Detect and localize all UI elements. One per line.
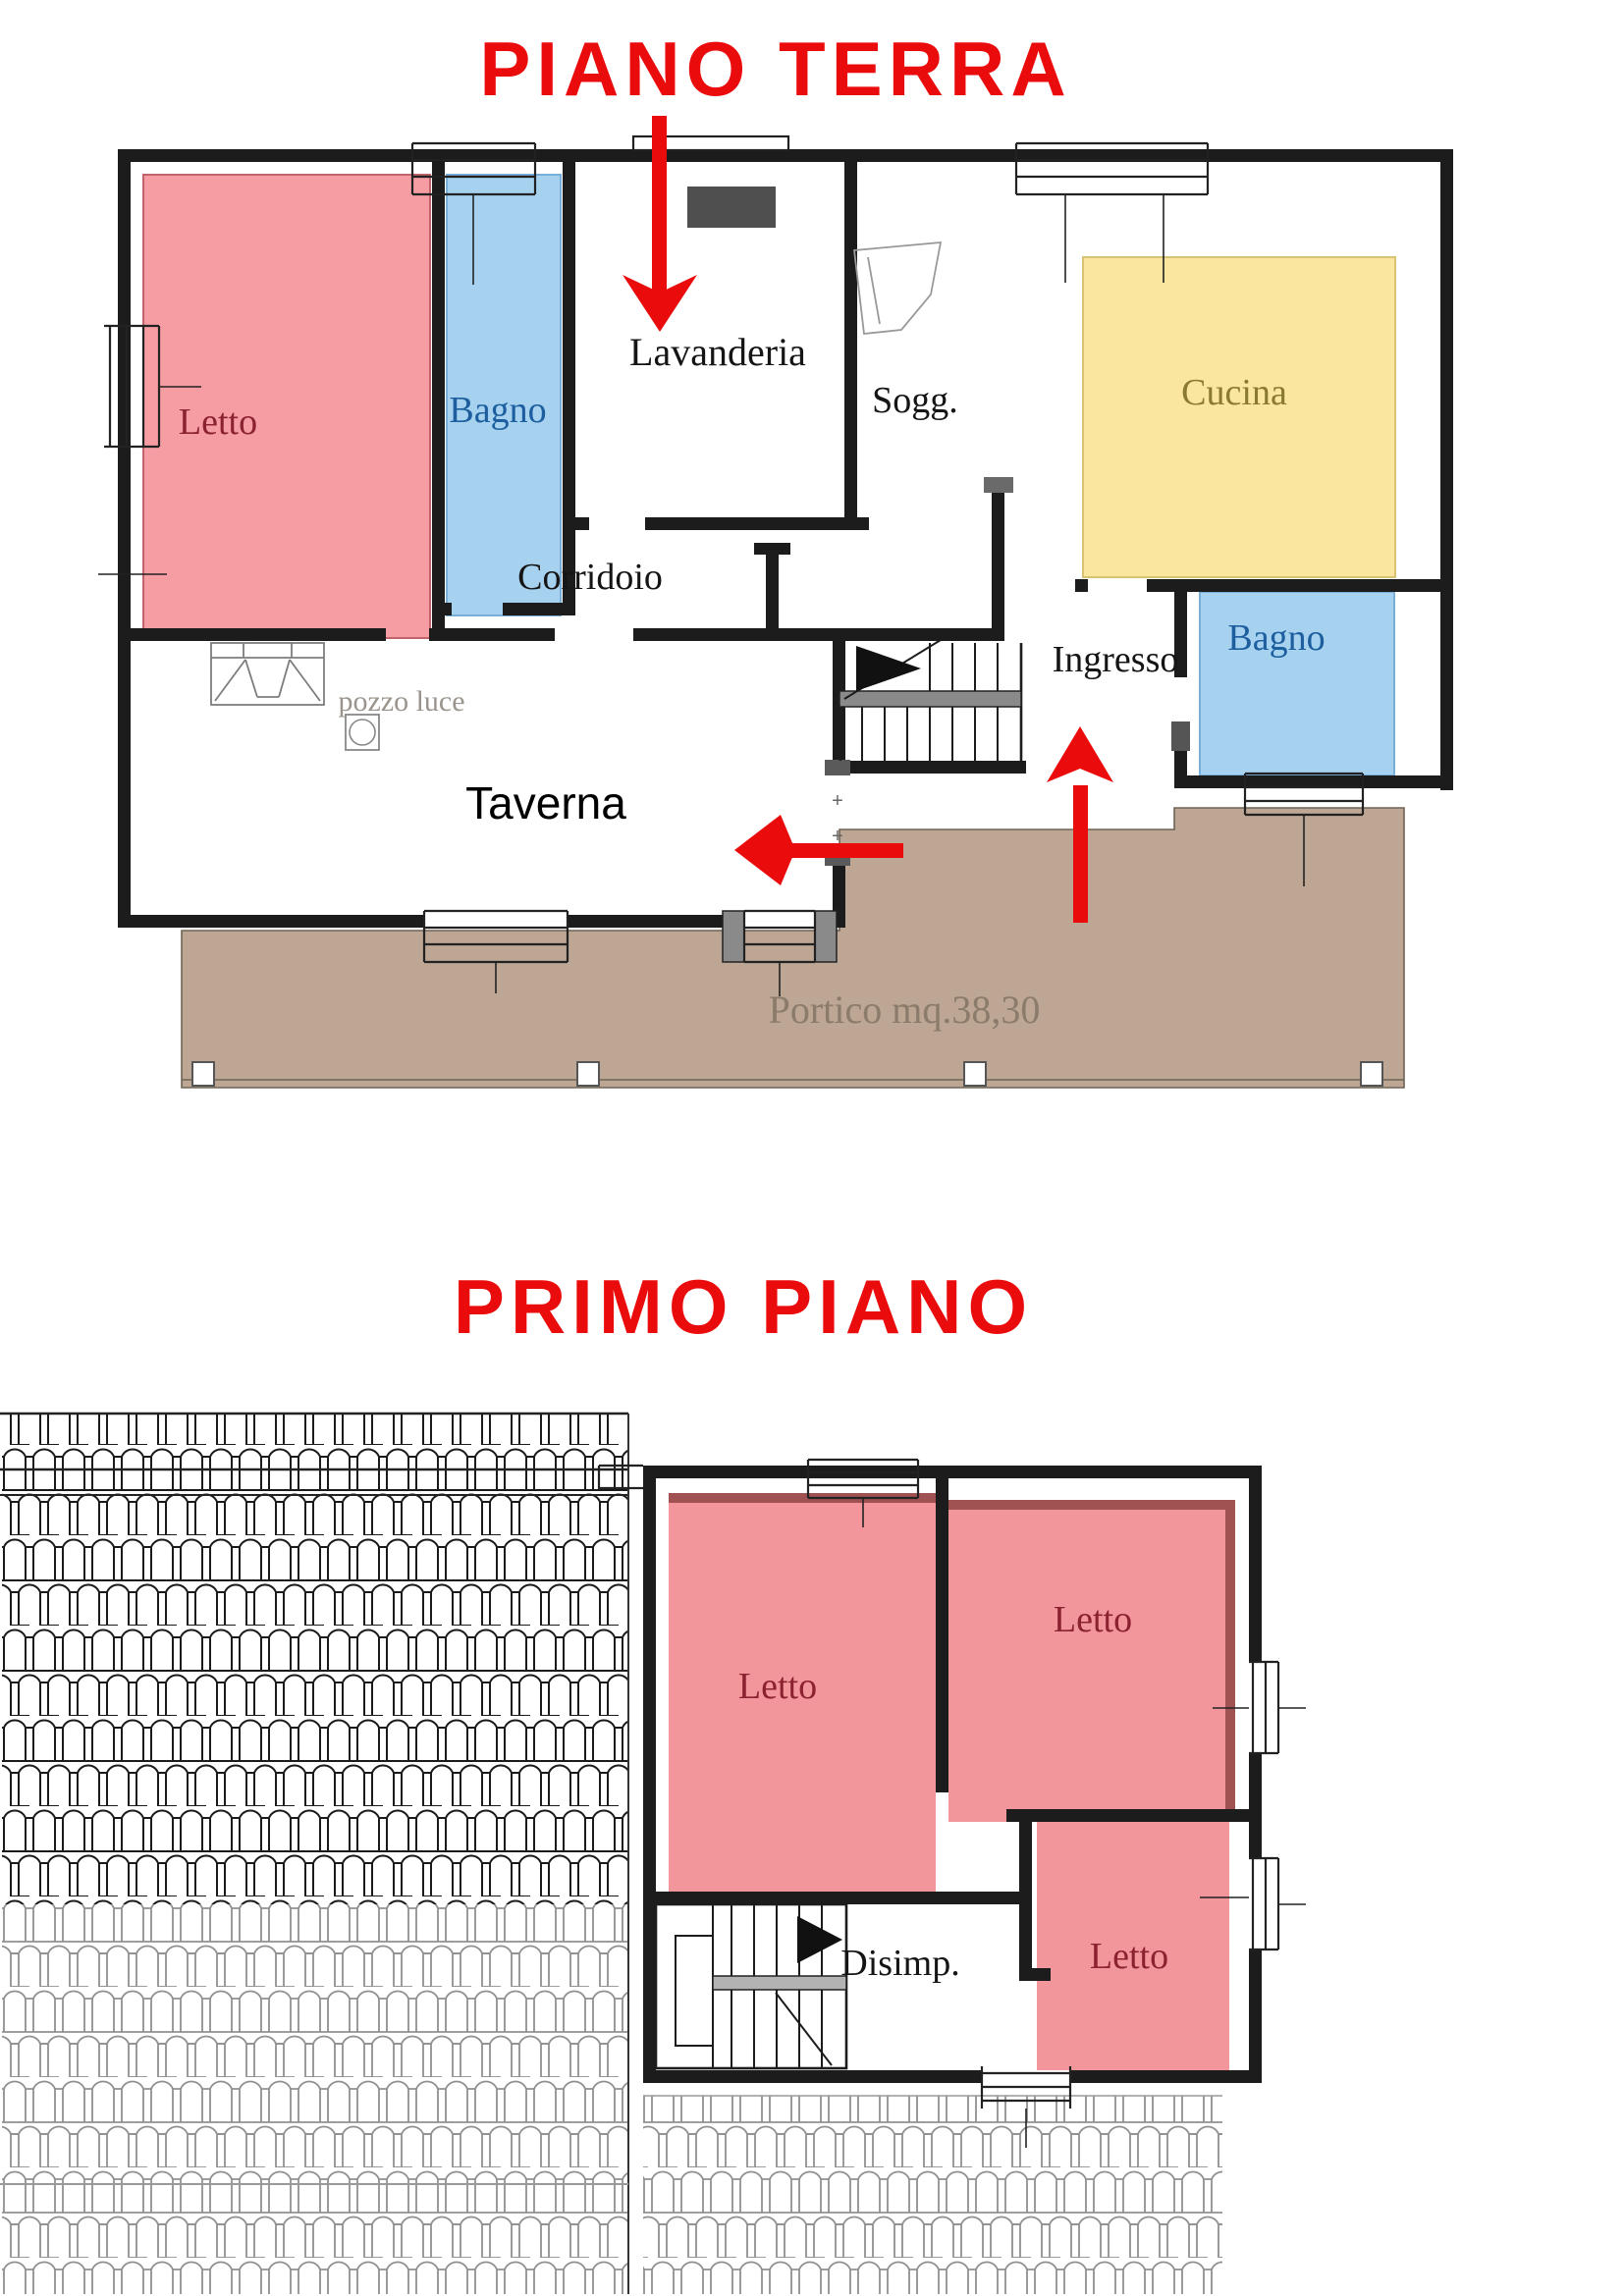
label-letto-left-first: Letto (738, 1666, 817, 1707)
label-ingresso: Ingresso (1053, 639, 1179, 680)
room-letto-topright-shade-top (948, 1500, 1235, 1510)
label-lavanderia: Lavanderia (629, 330, 806, 374)
label-pozzo-luce: pozzo luce (338, 685, 464, 718)
lavanderia-door-block (687, 187, 776, 228)
soggiorno-door-block (984, 477, 1013, 493)
stair-direction-arrow-icon (856, 646, 921, 691)
light-well-icon (346, 715, 379, 750)
label-taverna: Taverna (465, 777, 626, 828)
taverna-door-jamb-top (825, 760, 850, 775)
door-swing-sketch (854, 242, 941, 334)
label-bagno2-ground: Bagno (1227, 617, 1325, 659)
label-letto-topright-first: Letto (1054, 1599, 1132, 1640)
staircase-ground (839, 640, 1021, 761)
label-portico: Portico mq.38,30 (769, 988, 1041, 1032)
label-letto-bottomright-first: Letto (1090, 1936, 1168, 1977)
ground-floor-plan: + + (98, 116, 1453, 1088)
room-cucina-ground (1083, 257, 1395, 577)
stair-direction-arrow-icon (797, 1916, 842, 1963)
door-hinge-mark: + (832, 790, 843, 812)
label-bagno1-ground: Bagno (449, 390, 546, 431)
label-corridoio: Corridoio (517, 557, 663, 598)
skylight-icon (211, 643, 324, 705)
label-cucina: Cucina (1181, 372, 1287, 413)
floor-plan-canvas: PIANO TERRA PRIMO PIANO (0, 0, 1624, 2296)
floorplan-page: PIANO TERRA PRIMO PIANO (0, 0, 1624, 2296)
first-floor-title: PRIMO PIANO (454, 1263, 1033, 1350)
room-letto-topright-first (948, 1500, 1235, 1822)
label-disimp: Disimp. (840, 1943, 959, 1984)
bagno2-door-block (1171, 721, 1190, 751)
ground-floor-title: PIANO TERRA (479, 26, 1071, 112)
first-floor-plan: Letto Letto Letto Disimp. (0, 1414, 1306, 2294)
label-soggiorno: Sogg. (872, 380, 958, 421)
room-letto-topright-shade-right (1225, 1510, 1235, 1822)
staircase-first (656, 1904, 846, 2068)
label-letto-ground: Letto (179, 401, 257, 443)
